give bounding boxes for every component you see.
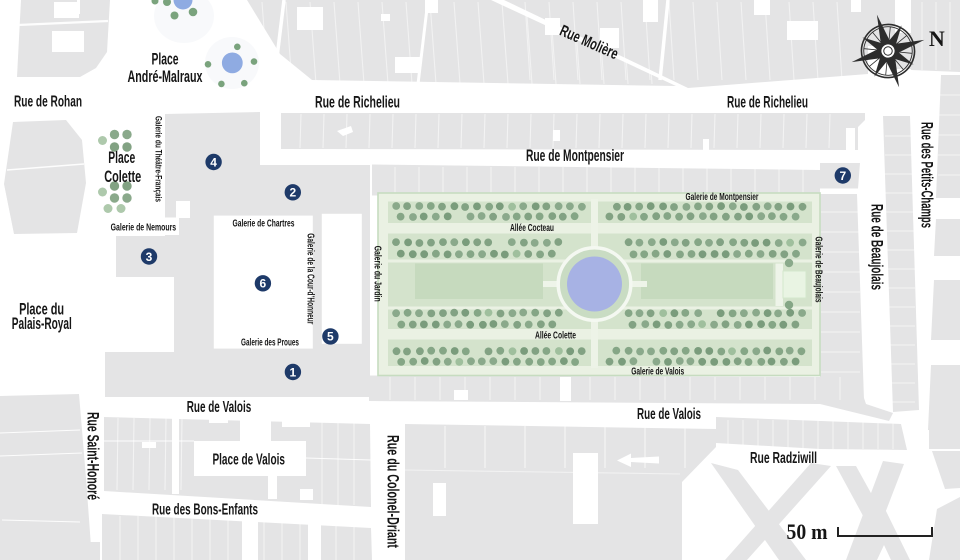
svg-text:1: 1	[290, 365, 297, 379]
svg-text:7: 7	[839, 169, 846, 183]
svg-text:Rue des Bons-Enfants: Rue des Bons-Enfants	[152, 502, 258, 519]
svg-text:Palais-Royal: Palais-Royal	[12, 315, 72, 333]
svg-text:Rue Radziwill: Rue Radziwill	[750, 450, 817, 467]
svg-text:Rue de Montpensier: Rue de Montpensier	[526, 147, 624, 165]
svg-text:3: 3	[146, 250, 153, 264]
svg-text:Rue de Valois: Rue de Valois	[187, 399, 252, 416]
svg-text:50 m: 50 m	[787, 519, 828, 544]
svg-text:Galerie de Montpensier: Galerie de Montpensier	[686, 192, 759, 203]
svg-text:Rue des Petits-Champs: Rue des Petits-Champs	[918, 122, 936, 228]
svg-text:Rue de Valois: Rue de Valois	[637, 406, 701, 423]
svg-text:Rue Saint-Honoré: Rue Saint-Honoré	[84, 412, 102, 500]
svg-text:Allée Cocteau: Allée Cocteau	[510, 223, 554, 234]
svg-text:Place: Place	[152, 50, 179, 69]
svg-text:2: 2	[289, 186, 296, 200]
svg-text:N: N	[929, 26, 945, 51]
svg-text:Colette: Colette	[104, 167, 141, 186]
svg-text:Rue de Beaujolais: Rue de Beaujolais	[868, 204, 886, 290]
svg-text:Rue du Colonel-Driant: Rue du Colonel-Driant	[384, 435, 402, 548]
svg-text:Rue de Richelieu: Rue de Richelieu	[315, 94, 400, 112]
svg-text:Rue de Rohan: Rue de Rohan	[14, 94, 82, 111]
svg-text:4: 4	[210, 155, 217, 169]
svg-text:Place: Place	[108, 148, 135, 167]
svg-text:Allée Colette: Allée Colette	[535, 331, 576, 342]
svg-text:Galerie du Théâtre-Français: Galerie du Théâtre-Français	[152, 116, 163, 202]
svg-text:Galerie de Chartres: Galerie de Chartres	[233, 218, 295, 230]
svg-text:Galerie de Nemours: Galerie de Nemours	[111, 222, 177, 234]
svg-text:5: 5	[327, 330, 334, 344]
svg-text:Place de Valois: Place de Valois	[212, 452, 285, 469]
svg-text:Galerie de Valois: Galerie de Valois	[631, 367, 684, 378]
svg-text:Galerie de Beaujolais: Galerie de Beaujolais	[813, 237, 824, 303]
svg-text:André-Malraux: André-Malraux	[128, 67, 203, 86]
svg-text:6: 6	[260, 277, 267, 291]
svg-text:Rue de Richelieu: Rue de Richelieu	[727, 94, 808, 112]
svg-text:Galerie de la Cour-d’Honneur: Galerie de la Cour-d’Honneur	[305, 233, 317, 324]
svg-text:Galerie des Proues: Galerie des Proues	[241, 337, 299, 349]
svg-text:Galerie du Jardin: Galerie du Jardin	[372, 246, 383, 302]
